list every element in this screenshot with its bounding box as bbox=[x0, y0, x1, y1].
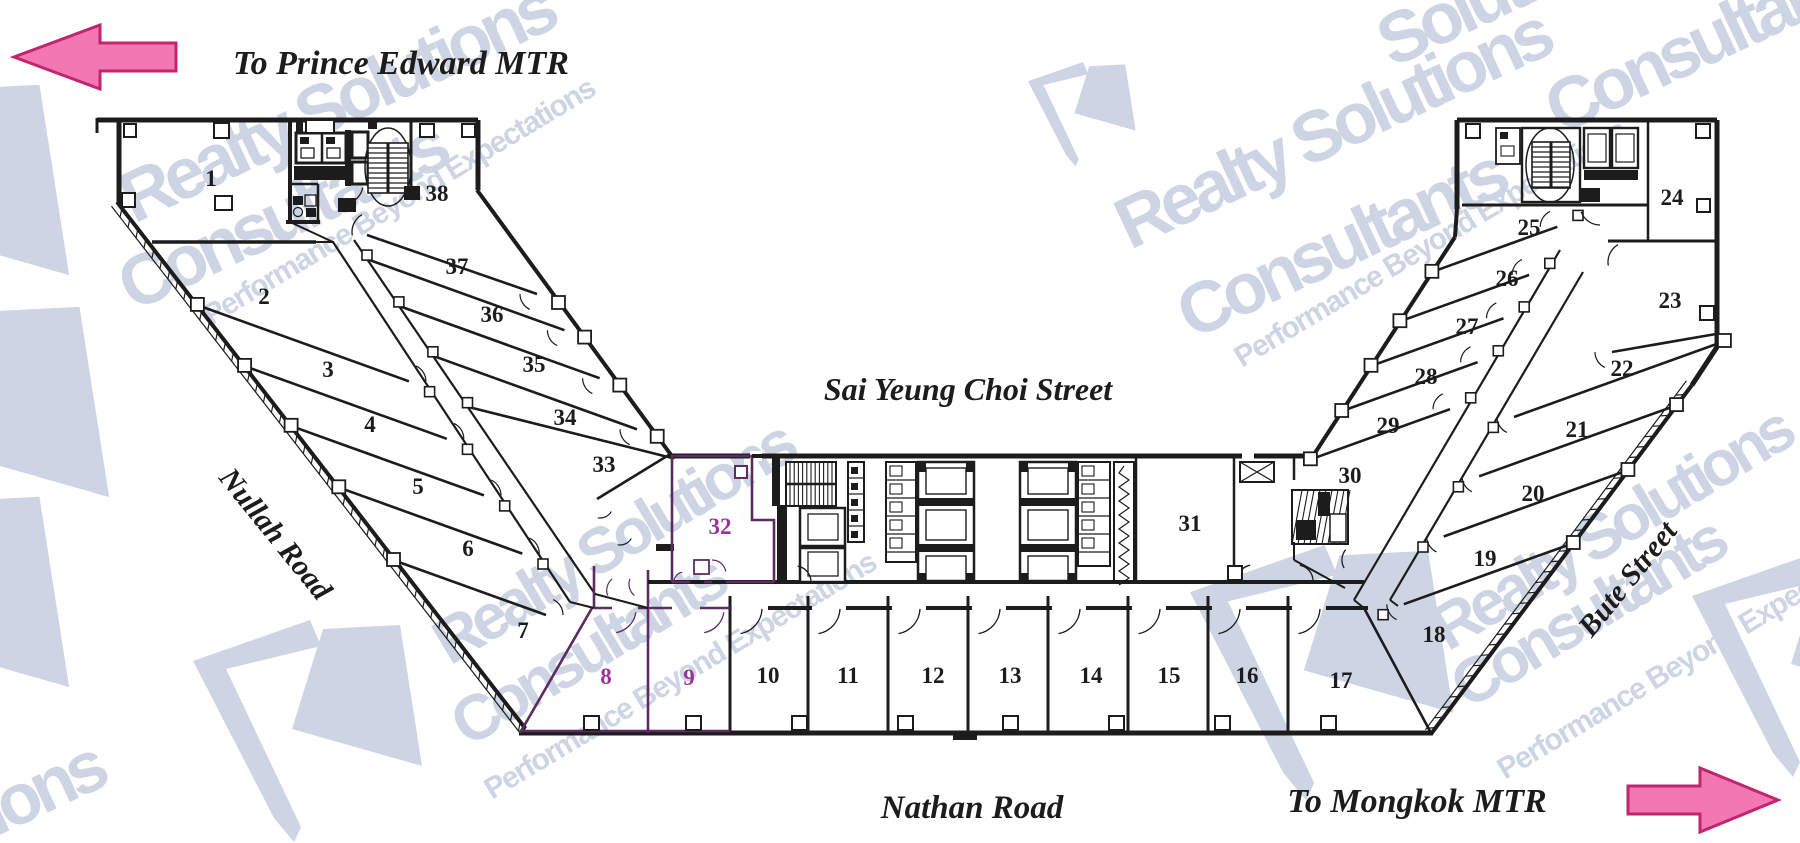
svg-text:31: 31 bbox=[1179, 511, 1202, 536]
svg-text:18: 18 bbox=[1423, 622, 1446, 647]
svg-text:29: 29 bbox=[1377, 413, 1400, 438]
svg-text:27: 27 bbox=[1456, 314, 1479, 339]
svg-text:38: 38 bbox=[426, 181, 449, 206]
svg-text:35: 35 bbox=[523, 352, 546, 377]
svg-text:25: 25 bbox=[1518, 215, 1541, 240]
svg-text:1: 1 bbox=[205, 166, 217, 191]
svg-text:28: 28 bbox=[1415, 364, 1438, 389]
svg-text:20: 20 bbox=[1522, 481, 1545, 506]
svg-text:7: 7 bbox=[517, 618, 529, 643]
svg-text:To Prince Edward MTR: To Prince Edward MTR bbox=[233, 45, 569, 82]
svg-text:37: 37 bbox=[446, 254, 469, 279]
svg-text:16: 16 bbox=[1236, 663, 1259, 688]
svg-text:32: 32 bbox=[709, 514, 732, 539]
svg-text:33: 33 bbox=[593, 452, 616, 477]
svg-text:34: 34 bbox=[554, 405, 578, 430]
svg-text:5: 5 bbox=[412, 474, 424, 499]
svg-text:17: 17 bbox=[1330, 668, 1353, 693]
svg-text:26: 26 bbox=[1496, 266, 1519, 291]
svg-text:14: 14 bbox=[1080, 663, 1104, 688]
svg-text:To Mongkok MTR: To Mongkok MTR bbox=[1287, 783, 1546, 820]
svg-text:23: 23 bbox=[1659, 288, 1682, 313]
svg-text:36: 36 bbox=[481, 302, 504, 327]
svg-text:10: 10 bbox=[757, 663, 780, 688]
svg-text:13: 13 bbox=[999, 663, 1022, 688]
svg-text:11: 11 bbox=[837, 663, 859, 688]
svg-text:19: 19 bbox=[1474, 546, 1497, 571]
svg-text:30: 30 bbox=[1339, 463, 1362, 488]
svg-text:6: 6 bbox=[462, 536, 474, 561]
svg-text:3: 3 bbox=[322, 357, 334, 382]
svg-text:Nathan Road: Nathan Road bbox=[880, 790, 1064, 826]
svg-text:2: 2 bbox=[258, 284, 270, 309]
svg-text:8: 8 bbox=[600, 664, 612, 689]
svg-text:21: 21 bbox=[1566, 417, 1589, 442]
svg-text:15: 15 bbox=[1158, 663, 1181, 688]
svg-text:Sai Yeung Choi Street: Sai Yeung Choi Street bbox=[824, 371, 1113, 407]
svg-text:4: 4 bbox=[364, 412, 376, 437]
svg-text:12: 12 bbox=[922, 663, 945, 688]
svg-text:22: 22 bbox=[1611, 356, 1634, 381]
svg-text:24: 24 bbox=[1661, 185, 1685, 210]
svg-text:9: 9 bbox=[683, 665, 695, 690]
